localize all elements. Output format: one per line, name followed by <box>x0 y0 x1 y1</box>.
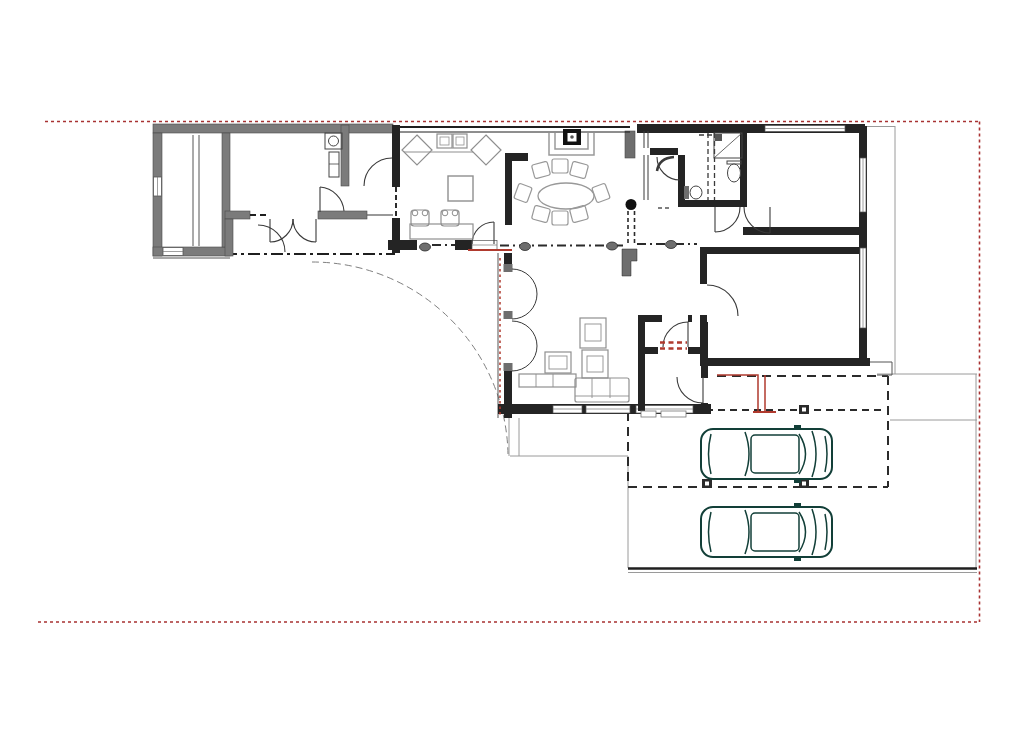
towel-radiator <box>657 157 674 171</box>
bifold-mullion <box>504 264 513 272</box>
corridor-west-stub <box>225 219 233 256</box>
entry-door-gap <box>701 378 708 403</box>
dining-chair <box>552 159 568 173</box>
kitchen-sink <box>437 134 452 148</box>
corridor-north-wall <box>225 211 250 219</box>
dining-chair <box>552 211 568 225</box>
armchair-cushion <box>587 356 603 372</box>
dining-wall-stub <box>625 131 635 158</box>
dining-chair <box>592 183 611 203</box>
kitchen-sink <box>453 134 467 148</box>
entry-door-swing <box>677 377 703 403</box>
vestibule-wall <box>650 148 678 155</box>
bath-west-wall <box>678 155 685 207</box>
carport-post-marker-core <box>802 482 806 486</box>
dining-chair <box>514 183 533 203</box>
column <box>607 242 618 250</box>
floor-plan-page <box>0 0 1024 747</box>
car-windshield <box>799 512 806 552</box>
column <box>520 243 531 251</box>
car-hood-line <box>812 431 816 477</box>
entry-threshold <box>641 411 656 417</box>
bifold-door-swing <box>512 346 537 371</box>
kitchen-chair-arm <box>412 210 418 216</box>
kitchen-west-wall <box>392 125 400 187</box>
kitchen-chair-arm <box>452 210 458 216</box>
kitchen-corner-cabinet <box>471 135 501 165</box>
bifold-door-swing <box>512 321 537 346</box>
kitchen-south-wall <box>388 240 417 250</box>
kitchen-chair-arm <box>442 210 448 216</box>
cars <box>701 425 832 561</box>
door-swing <box>364 158 392 186</box>
car-roof <box>751 435 799 473</box>
chimney-block <box>622 249 637 276</box>
car-roof <box>751 513 799 551</box>
sofa <box>575 378 629 402</box>
dining-table <box>538 183 594 209</box>
bedroom2-north-wall <box>700 247 865 254</box>
column <box>420 243 431 251</box>
dining-furniture <box>514 159 611 225</box>
structural-column-dot <box>626 199 637 210</box>
car-mirror <box>794 556 801 561</box>
entry-west-wall <box>638 322 645 411</box>
dining-chair <box>569 161 588 179</box>
bedroom1-west-wall <box>740 131 747 207</box>
carport-post-marker-core <box>802 408 806 412</box>
armchair <box>580 318 606 348</box>
bath-south-wall <box>678 200 747 207</box>
new-wall-red <box>717 375 758 412</box>
double-door-swing <box>293 219 316 242</box>
corridor-north-wall <box>318 211 367 219</box>
floor-plan-canvas <box>0 0 1024 747</box>
door-swing <box>258 225 285 252</box>
car-mirror <box>794 425 801 430</box>
kitchen-sink-basin <box>440 137 449 145</box>
car-rear-line <box>709 512 712 552</box>
vestibule-door-swing <box>657 157 680 180</box>
bedroom2-step <box>870 362 892 375</box>
bifold-mullion <box>504 363 513 371</box>
car-front-line <box>825 514 827 550</box>
toilet-bowl <box>690 186 702 199</box>
kitchen-south-wall <box>455 240 472 250</box>
bifold-door-swing <box>512 294 537 319</box>
armchair <box>582 350 608 378</box>
column <box>666 241 677 249</box>
car-rear-window <box>745 432 749 476</box>
car-rear-window <box>745 510 749 554</box>
tv-bench <box>519 374 576 387</box>
door-swing <box>320 187 344 211</box>
bedroom2-door-swing <box>707 285 738 316</box>
hall-living-door-gap <box>662 315 688 322</box>
kitchen-chair-arm <box>422 210 428 216</box>
bifold-door-swing <box>512 269 537 294</box>
entry-threshold <box>661 411 686 417</box>
dining-chair <box>531 205 550 223</box>
garden-arc <box>312 262 508 454</box>
armchair-cushion <box>585 324 601 341</box>
car-mirror <box>794 503 801 508</box>
kitchen-corner-cabinet <box>402 135 432 165</box>
washing-machine-drum <box>329 136 339 146</box>
car-body <box>701 507 832 557</box>
car-windshield <box>799 434 806 474</box>
walls-new <box>388 124 892 418</box>
kitchen-dining-wall <box>505 153 512 225</box>
car-hood-line <box>812 509 816 555</box>
bifold-mullion <box>504 311 513 319</box>
dining-chair <box>531 161 550 179</box>
fireplace-flue-dot <box>570 135 574 139</box>
bedroom2-door-gap <box>700 284 707 315</box>
hall-door-swing <box>663 322 688 347</box>
coffee-table-top <box>549 356 567 369</box>
toilet-tank <box>684 186 689 199</box>
annex-north-wall <box>153 124 393 133</box>
car-body <box>701 429 832 479</box>
car-rear-line <box>709 434 712 474</box>
bedroom2-south-wall <box>700 358 870 366</box>
living-furniture <box>519 318 629 402</box>
car-front-line <box>825 436 827 472</box>
carport-post-marker-core <box>705 482 709 486</box>
washing-machine <box>325 133 342 149</box>
kitchen-dining-wall <box>505 153 528 161</box>
car-mirror <box>794 478 801 483</box>
shower-head <box>715 134 722 141</box>
kitchen-island <box>448 176 473 201</box>
kitchen-sink-basin <box>456 137 464 145</box>
site-paving <box>153 126 977 573</box>
bath-sink <box>728 164 741 182</box>
utility-cabinet <box>329 152 339 177</box>
bath-door-swing <box>715 207 740 232</box>
